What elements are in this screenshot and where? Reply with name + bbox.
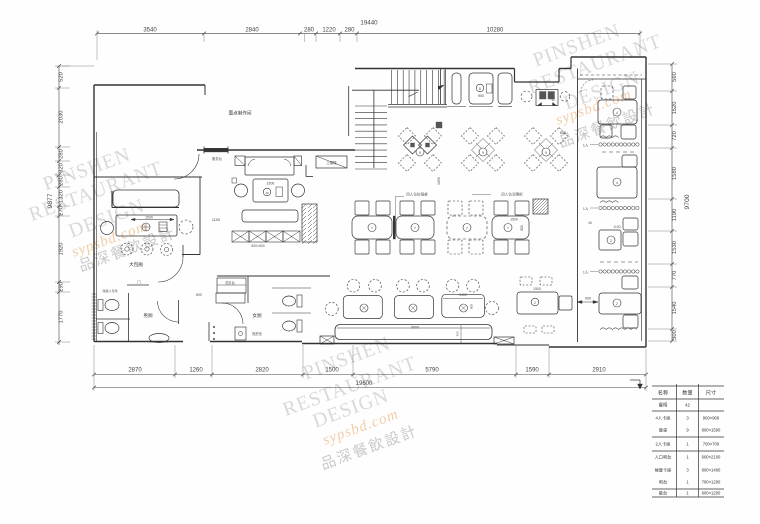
svg-text:女厕: 女厕 (252, 312, 262, 319)
svg-text:890: 890 (196, 293, 202, 297)
svg-text:2820: 2820 (255, 368, 269, 374)
svg-text:入口吧台: 入口吧台 (655, 454, 672, 461)
svg-text:1500: 1500 (267, 182, 275, 186)
svg-text:800: 800 (520, 225, 524, 231)
svg-text:餐桌: 餐桌 (659, 427, 668, 434)
svg-text:1: 1 (686, 455, 689, 460)
svg-text:尺寸: 尺寸 (706, 389, 716, 397)
svg-text:290: 290 (59, 282, 65, 292)
svg-text:300: 300 (672, 330, 678, 340)
svg-text:700×1200: 700×1200 (702, 480, 721, 485)
svg-text:700×700: 700×700 (703, 442, 720, 447)
svg-text:7: 7 (371, 227, 373, 231)
svg-text:1190: 1190 (672, 209, 678, 221)
svg-text:600×2100: 600×2100 (702, 455, 721, 460)
svg-text:面点制作间: 面点制作间 (229, 110, 252, 117)
svg-text:1500: 1500 (145, 216, 153, 220)
svg-text:5790: 5790 (425, 368, 439, 374)
svg-text:大包厢: 大包厢 (129, 261, 143, 268)
svg-text:男厕: 男厕 (143, 313, 153, 319)
svg-text:2: 2 (534, 301, 536, 305)
svg-text:2: 2 (616, 302, 618, 306)
svg-text:服务台: 服务台 (212, 156, 223, 161)
svg-text:900: 900 (585, 297, 591, 301)
svg-text:四人位砂锅桌: 四人位砂锅桌 (406, 192, 428, 197)
svg-text:280: 280 (304, 28, 315, 34)
svg-text:4: 4 (616, 111, 618, 115)
svg-text:2840: 2840 (245, 28, 259, 34)
svg-text:1590: 1590 (525, 368, 539, 374)
svg-text:4: 4 (616, 181, 618, 185)
svg-text:1500: 1500 (533, 287, 541, 291)
svg-text:3: 3 (686, 468, 689, 473)
svg-text:270: 270 (59, 206, 65, 216)
svg-text:900×900: 900×900 (703, 416, 720, 421)
svg-text:1320: 1320 (59, 190, 65, 203)
svg-text:280: 280 (344, 28, 355, 34)
svg-text:5000: 5000 (411, 326, 419, 330)
svg-text:96: 96 (551, 98, 555, 102)
svg-text:280: 280 (59, 176, 65, 186)
svg-text:1220: 1220 (322, 28, 336, 34)
svg-text:520: 520 (59, 72, 65, 82)
svg-text:9877: 9877 (47, 193, 54, 208)
svg-text:1520: 1520 (672, 102, 678, 115)
svg-text:1580: 1580 (672, 167, 678, 180)
svg-text:450: 450 (456, 331, 460, 336)
svg-text:800×1500: 800×1500 (702, 428, 721, 433)
svg-text:1: 1 (686, 491, 689, 496)
svg-text:拖把池: 拖把池 (252, 331, 262, 336)
svg-text:9: 9 (686, 428, 689, 433)
svg-text:数量: 数量 (682, 389, 692, 397)
svg-text:7: 7 (466, 227, 468, 231)
svg-text:8: 8 (479, 87, 481, 91)
svg-text:2: 2 (610, 239, 612, 243)
svg-text:560: 560 (672, 72, 678, 82)
svg-text:2人卡座: 2人卡座 (656, 441, 671, 448)
svg-text:3: 3 (686, 416, 689, 421)
svg-text:1050: 1050 (437, 177, 441, 185)
svg-text:餐椅: 餐椅 (659, 402, 668, 409)
svg-text:720: 720 (672, 131, 678, 141)
svg-text:1530: 1530 (672, 241, 678, 254)
svg-text:1人: 1人 (583, 270, 589, 275)
svg-text:46: 46 (588, 221, 592, 225)
svg-text:四人位消毒柜: 四人位消毒柜 (501, 192, 523, 197)
svg-text:10280: 10280 (487, 28, 504, 34)
svg-text:1920: 1920 (59, 243, 65, 256)
svg-text:散台: 散台 (659, 490, 667, 497)
svg-text:9: 9 (482, 151, 484, 155)
svg-text:600×1200: 600×1200 (702, 491, 721, 496)
svg-text:1500: 1500 (325, 368, 339, 374)
svg-text:280: 280 (59, 149, 65, 159)
svg-text:吧台: 吧台 (659, 479, 667, 486)
svg-text:9700: 9700 (684, 194, 691, 209)
svg-text:9: 9 (545, 151, 547, 155)
svg-text:1人: 1人 (583, 206, 589, 211)
svg-text:1: 1 (686, 480, 689, 485)
svg-text:2870: 2870 (128, 368, 142, 374)
svg-text:19440: 19440 (360, 20, 378, 27)
svg-text:2030: 2030 (59, 111, 65, 124)
svg-text:800: 800 (470, 304, 474, 309)
svg-text:3540: 3540 (143, 28, 157, 34)
svg-text:770: 770 (672, 271, 678, 281)
svg-text:1人: 1人 (583, 143, 589, 148)
svg-text:1100: 1100 (613, 225, 620, 229)
svg-text:600×600: 600×600 (251, 244, 264, 248)
svg-text:19600: 19600 (356, 381, 373, 387)
svg-text:10: 10 (265, 191, 269, 195)
svg-text:1770: 1770 (59, 311, 65, 324)
svg-text:820: 820 (59, 163, 65, 173)
svg-text:名称: 名称 (658, 389, 668, 397)
svg-text:1260: 1260 (189, 368, 203, 374)
svg-text:7: 7 (414, 227, 416, 231)
svg-text:门: 门 (137, 280, 141, 285)
svg-text:候餐卡座: 候餐卡座 (655, 467, 672, 474)
svg-text:1500: 1500 (510, 218, 518, 222)
svg-text:洗手台: 洗手台 (225, 280, 235, 285)
svg-text:900: 900 (478, 94, 484, 98)
svg-text:2400: 2400 (459, 293, 467, 297)
svg-text:1540: 1540 (672, 302, 678, 315)
svg-text:上菜梯: 上菜梯 (326, 160, 337, 165)
svg-text:1: 1 (686, 442, 689, 447)
svg-text:残疾人专用: 残疾人专用 (102, 288, 117, 293)
svg-text:640: 640 (560, 131, 566, 135)
svg-text:4人卡座: 4人卡座 (656, 415, 671, 422)
svg-text:2910: 2910 (592, 368, 606, 374)
svg-text:800×1400: 800×1400 (702, 468, 721, 473)
svg-text:42: 42 (685, 403, 690, 408)
svg-text:9: 9 (419, 151, 421, 155)
svg-text:1100: 1100 (212, 218, 220, 222)
svg-text:7: 7 (507, 227, 509, 231)
